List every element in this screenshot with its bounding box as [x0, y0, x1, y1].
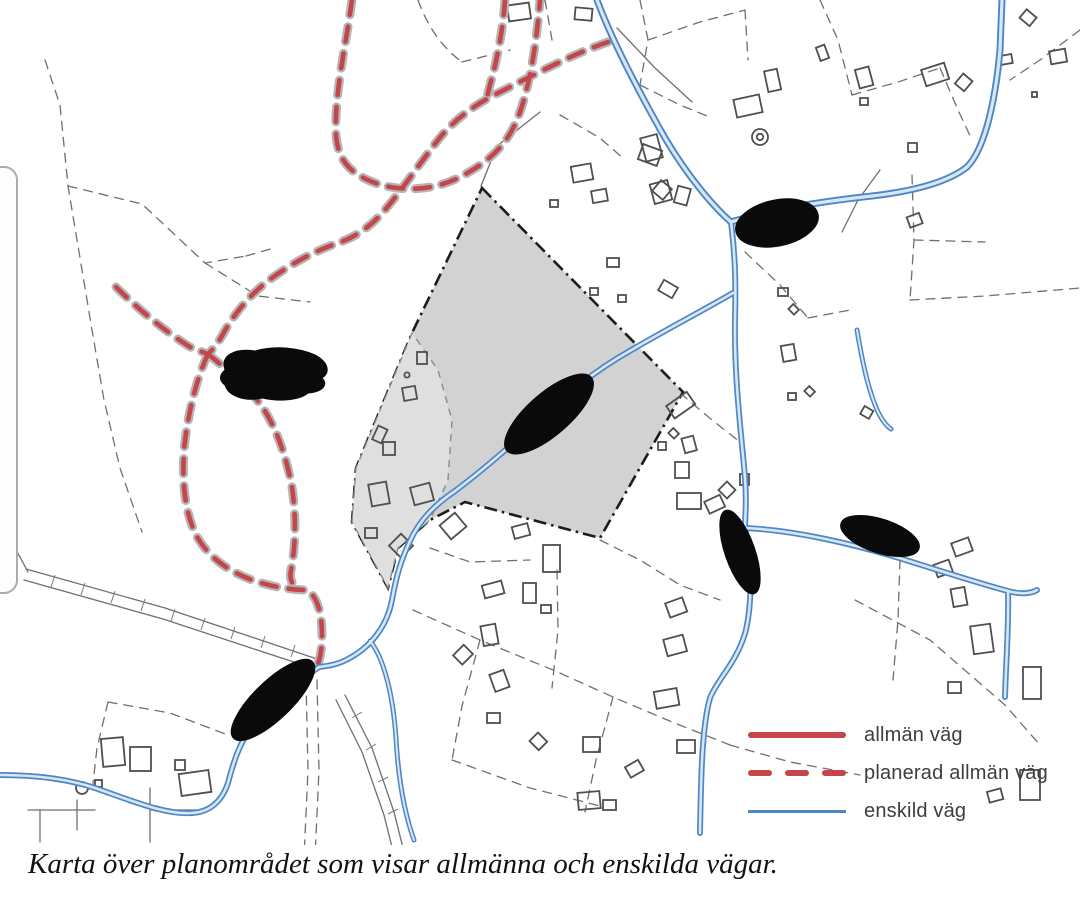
legend-label: allmän väg: [864, 724, 963, 747]
plan-map: allmän väg planerad allmän väg enskild v…: [0, 0, 1080, 845]
legend-item-planned-public-road: planerad allmän väg: [748, 754, 1078, 792]
figure-caption: Karta över planområdet som visar allmänn…: [28, 848, 1068, 881]
map-legend: allmän väg planerad allmän väg enskild v…: [748, 716, 1078, 830]
scrollbar-handle[interactable]: [0, 166, 18, 594]
legend-label: planerad allmän väg: [864, 762, 1048, 785]
redacted-label: [836, 507, 924, 565]
plan-subarea-polygon: [352, 333, 452, 588]
legend-item-private-road: enskild väg: [748, 792, 1078, 830]
public-road-line-icon: [748, 732, 846, 738]
document-page: allmän väg planerad allmän väg enskild v…: [0, 0, 1080, 905]
redacted-label: [220, 348, 327, 400]
redacted-label: [220, 648, 326, 752]
planned-public-road-line-icon: [748, 770, 846, 776]
private-road-line-icon: [748, 810, 846, 813]
legend-label: enskild väg: [864, 800, 966, 823]
legend-item-public-road: allmän väg: [748, 716, 1078, 754]
redacted-label: [711, 506, 768, 599]
